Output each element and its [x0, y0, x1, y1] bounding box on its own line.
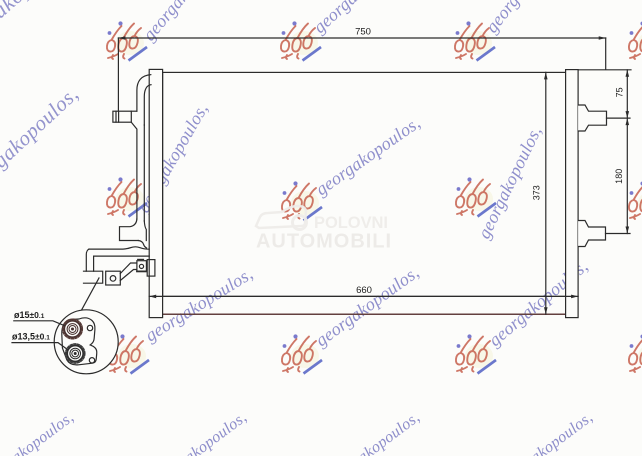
svg-text:75: 75: [615, 87, 625, 97]
svg-text:AUTOMOBILI: AUTOMOBILI: [256, 231, 391, 253]
svg-text:373: 373: [532, 185, 542, 200]
svg-text:660: 660: [356, 285, 372, 296]
svg-text:180: 180: [614, 169, 624, 184]
svg-text:750: 750: [355, 27, 371, 38]
svg-text:POLOVNI: POLOVNI: [314, 214, 388, 232]
